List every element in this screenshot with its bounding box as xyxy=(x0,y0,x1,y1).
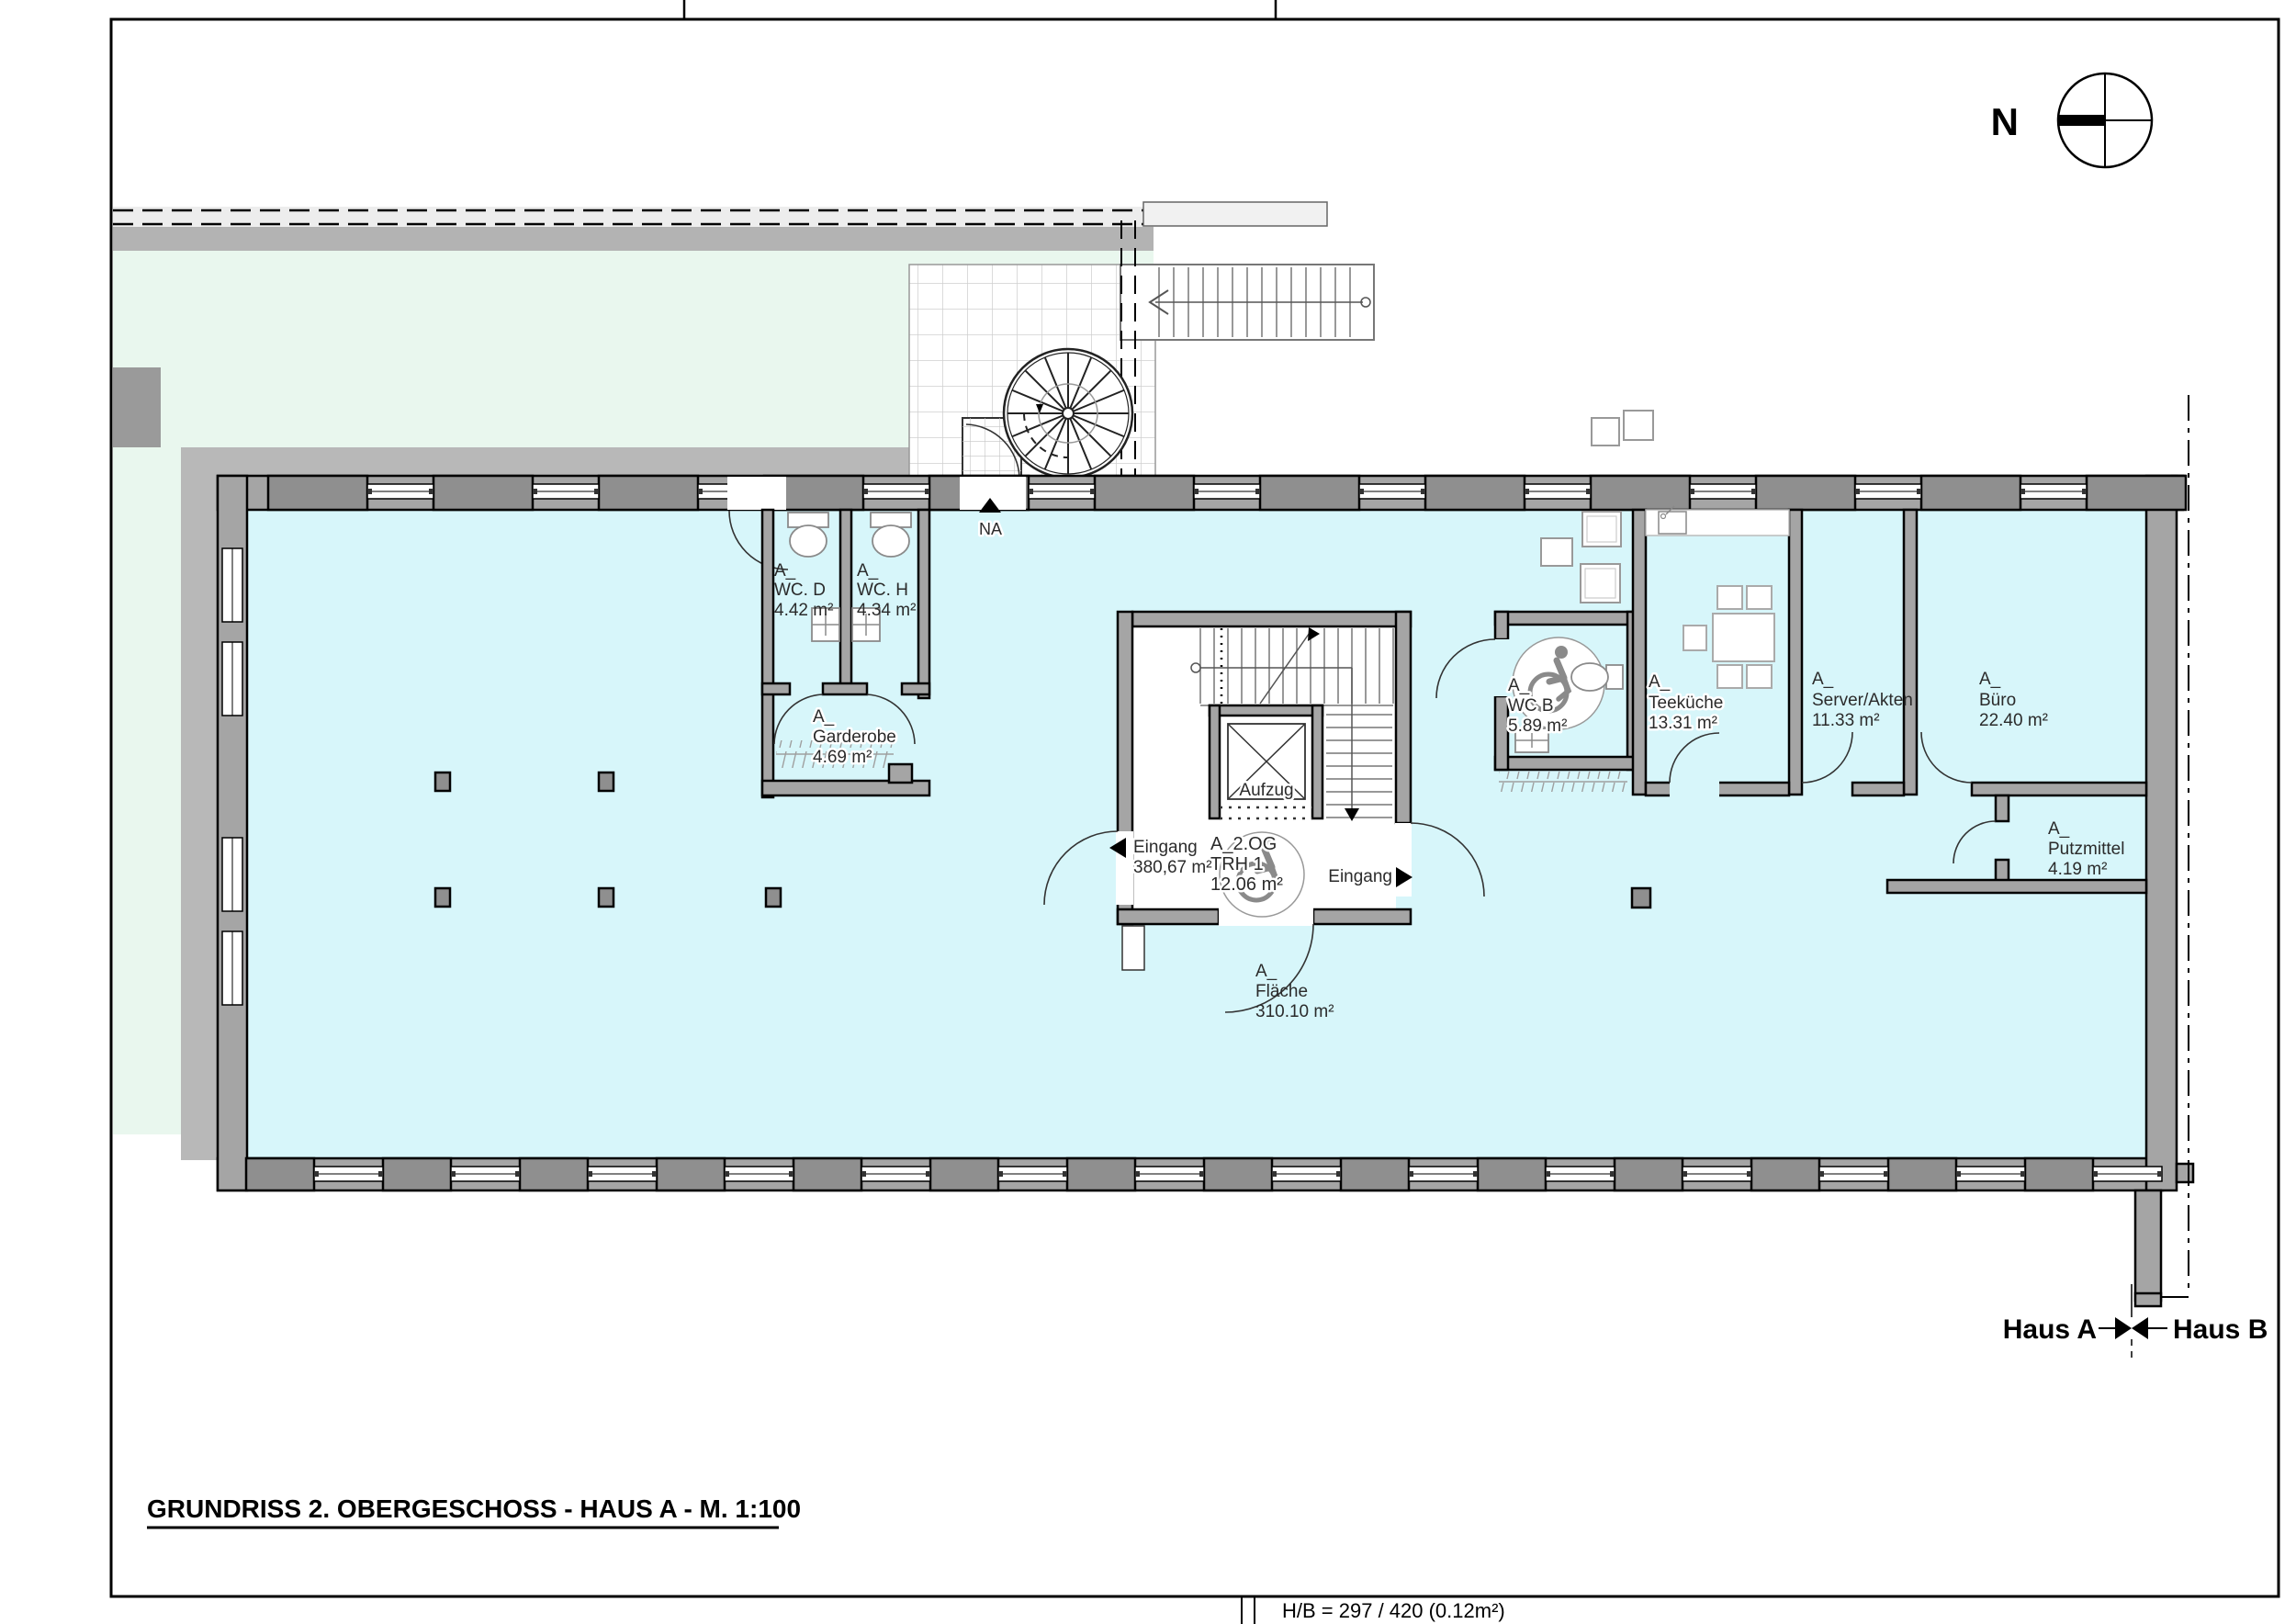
room-area-buero: 22.40 m² xyxy=(1979,711,2048,730)
entrance-left-label: Eingang xyxy=(1133,838,1198,857)
north-compass-icon: N xyxy=(1991,73,2152,167)
room-area-trh: 12.06 m² xyxy=(1210,874,1283,895)
room-label-garderobe: Garderobe xyxy=(813,727,896,747)
room-label-flaeche: Fläche xyxy=(1255,982,1308,1001)
walkway-left xyxy=(181,447,218,1160)
room-label-putzmittel-prefix: A_ xyxy=(2048,819,2070,839)
room-label-garderobe-prefix: A_ xyxy=(813,707,835,727)
sink-icon xyxy=(1659,512,1686,534)
toilet-icon xyxy=(871,513,911,557)
floor-plan-drawing: NA xyxy=(0,0,2296,1624)
north-label: N xyxy=(1991,100,2019,143)
elevator-label: Aufzug xyxy=(1239,781,1293,800)
room-area-server: 11.33 m² xyxy=(1812,711,1880,730)
wall-right xyxy=(2146,476,2177,1190)
room-label-wc-h: WC. H xyxy=(857,581,908,600)
room-label-wc-b: WC B xyxy=(1508,696,1554,716)
room-label-trh: TRH 1 xyxy=(1210,854,1264,874)
room-label-trh-prefix: A_2.OG xyxy=(1210,834,1277,854)
section-bowtie-icon xyxy=(2132,1317,2148,1339)
room-label-wc-b-prefix: A_ xyxy=(1508,676,1530,695)
sheet-format-note: H/B = 297 / 420 (0.12m²) xyxy=(1282,1599,1505,1622)
entrance-right-label: Eingang xyxy=(1328,867,1392,886)
room-label-buero: Büro xyxy=(1979,691,2016,710)
roof-unit xyxy=(1624,411,1653,440)
room-area-wc-d: 4.42 m² xyxy=(774,601,833,620)
walkway-top xyxy=(181,447,909,478)
room-label-putzmittel: Putzmittel xyxy=(2048,840,2124,859)
floor-plan-page: NA xyxy=(0,0,2296,1624)
room-area-teekueche: 13.31 m² xyxy=(1649,714,1717,733)
haus-a-label: Haus A xyxy=(2003,1314,2097,1345)
room-area-putzmittel: 4.19 m² xyxy=(2048,860,2107,879)
room-label-flaeche-prefix: A_ xyxy=(1255,962,1277,981)
drawing-title: GRUNDRISS 2. OBERGESCHOSS - HAUS A - M. … xyxy=(147,1494,801,1523)
room-label-server: Server/Akten xyxy=(1812,691,1913,710)
exterior-stair xyxy=(1120,220,1374,499)
kitchen-counter xyxy=(1646,506,1789,536)
toilet-icon xyxy=(1571,663,1623,691)
room-label-server-prefix: A_ xyxy=(1812,670,1834,689)
neighbour-structure xyxy=(113,367,161,447)
room-label-buero-prefix: A_ xyxy=(1979,670,2001,689)
roof-slab xyxy=(1143,202,1327,226)
room-area-flaeche: 310.10 m² xyxy=(1255,1002,1334,1021)
room-area-wc-h: 4.34 m² xyxy=(857,601,916,620)
room-label-wc-d: WC. D xyxy=(774,581,826,600)
room-label-wc-h-prefix: A_ xyxy=(857,561,879,581)
na-label: NA xyxy=(979,520,1002,538)
roof-unit xyxy=(1592,418,1619,445)
entrance-left-area: 380,67 m² xyxy=(1133,858,1212,877)
room-area-garderobe: 4.69 m² xyxy=(813,748,872,767)
room-area-wc-b: 5.89 m² xyxy=(1508,716,1567,736)
upper-band xyxy=(113,227,1154,251)
room-label-wc-d-prefix: A_ xyxy=(774,561,796,581)
section-bowtie-icon xyxy=(2115,1317,2132,1339)
toilet-icon xyxy=(788,513,828,557)
room-label-teekueche-prefix: A_ xyxy=(1649,672,1671,692)
room-label-teekueche: Teeküche xyxy=(1649,694,1723,713)
haus-b-label: Haus B xyxy=(2173,1314,2268,1345)
